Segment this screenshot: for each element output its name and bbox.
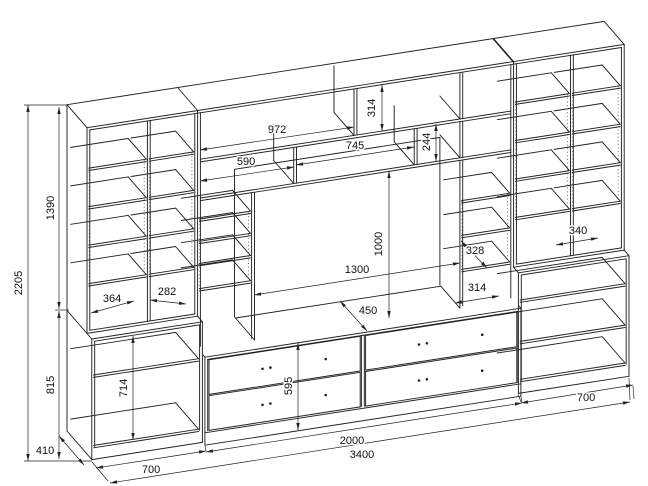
center-columns [181, 65, 511, 347]
dimension-line-total-width-3400 [110, 401, 630, 483]
left-tower-upper [67, 105, 198, 334]
dim-lower-inner-height: 714 [118, 379, 130, 397]
dim-upper-section-height: 1390 [45, 196, 57, 220]
dim-top-compartment-height: 314 [366, 99, 378, 117]
dim-center-section-width: 2000 [340, 435, 364, 447]
furniture-drawing [67, 21, 629, 459]
dim-overall-height: 2205 [13, 271, 25, 295]
dimension-line-shelf-282 [150, 299, 186, 305]
tv-niche [235, 137, 460, 340]
dimension-line-row-height-314 [380, 85, 383, 131]
dim-left-shelf-width: 364 [103, 293, 121, 305]
dim-second-compartment-height: 244 [421, 133, 433, 151]
dim-right-inner-width: 328 [466, 245, 484, 257]
dim-side-depth: 410 [36, 445, 54, 457]
dimension-line-lower-height [57, 311, 60, 459]
dimension-line-niche-height-1000 [387, 171, 390, 318]
technical-drawing: 2205 1390 815 714 410 700 364 282 972 59… [0, 0, 648, 486]
dim-tv-stand-height: 595 [283, 377, 295, 395]
dim-tv-niche-height: 1000 [373, 232, 385, 256]
dimension-line-inner-height-714 [131, 336, 134, 440]
dim-left-shelf-width-2: 282 [158, 286, 176, 298]
dimension-line-right-inner-314 [455, 295, 499, 303]
dim-lower-section-height: 815 [45, 376, 57, 394]
dimension-line-row-height-244 [434, 124, 437, 161]
dim-right-inner-width-2: 314 [468, 282, 486, 294]
dimension-annotations [24, 85, 634, 484]
top-panel [67, 21, 624, 129]
drawing-canvas: 2205 1390 815 714 410 700 364 282 972 59… [0, 0, 648, 486]
dim-right-section-width: 700 [577, 392, 595, 404]
dimension-line-right-shelf-340 [556, 238, 598, 246]
dim-total-width: 3400 [350, 449, 374, 461]
right-tower-upper [497, 44, 624, 267]
dimension-line-upper-height [57, 107, 60, 309]
dim-right-shelf-width: 340 [569, 225, 587, 237]
dim-upper-shelf-width-2: 590 [237, 156, 255, 168]
dim-tv-shelf-depth: 450 [359, 305, 377, 317]
dim-left-section-width: 700 [142, 464, 160, 476]
dim-top-shelf-width: 972 [268, 124, 286, 136]
dim-tv-niche-width: 1300 [345, 264, 369, 276]
dimension-line-shelf-590 [200, 166, 294, 181]
dimension-line-overall-height [26, 105, 29, 461]
dim-upper-shelf-width: 745 [346, 140, 364, 152]
